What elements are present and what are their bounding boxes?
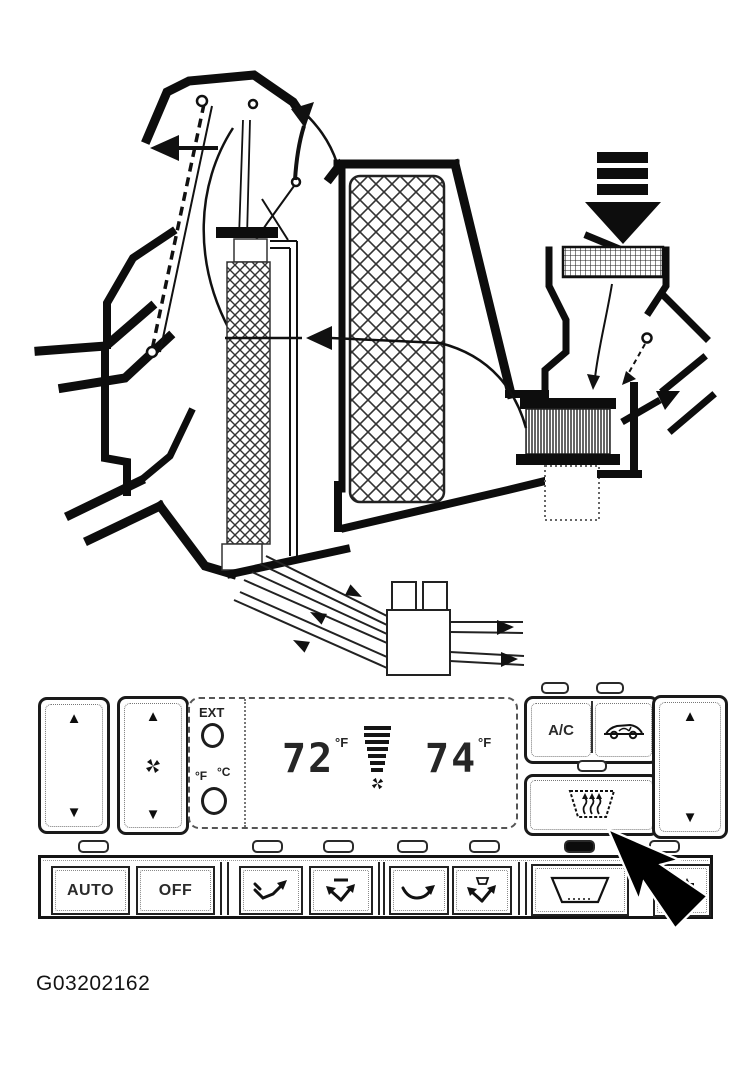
windshield-defrost-icon	[563, 786, 621, 824]
indicator-led	[78, 840, 109, 853]
fan-speed-gauge	[363, 726, 391, 790]
fan-speed-bar	[367, 747, 388, 751]
divider	[227, 862, 229, 915]
driver-temp-readout: 72	[282, 739, 334, 779]
panel-vent-icon	[249, 874, 293, 908]
fan-speed-bar	[371, 768, 383, 772]
heater-core	[216, 227, 278, 570]
passenger-temp-unit: °F	[478, 735, 491, 750]
fahrenheit-label: °F	[195, 769, 207, 783]
divider	[220, 862, 222, 915]
hvac-housing	[231, 164, 712, 574]
vent-mode-bilevel-button[interactable]	[309, 866, 373, 915]
ac-button-label: A/C	[548, 722, 574, 739]
driver-temp-bezel: ▲ ▼	[38, 697, 110, 834]
fan-speed-bezel: ▲ ▼	[117, 696, 189, 835]
indicator-led	[397, 840, 428, 853]
front-defrost-mode-button[interactable]	[531, 864, 629, 916]
indicator-led	[469, 840, 500, 853]
climate-display: EXT °F °C 72 °F 74 °F	[188, 697, 518, 829]
driver-temp-unit: °F	[335, 735, 348, 750]
hvac-airflow-diagram	[0, 0, 755, 690]
down-arrow-icon[interactable]: ▼	[67, 806, 82, 819]
divider	[383, 862, 385, 915]
coolant-flow-arrows	[450, 620, 524, 667]
display-sensor-column: EXT °F °C	[190, 699, 246, 827]
fan-speed-bar	[364, 726, 391, 730]
ext-indicator-window	[201, 723, 224, 748]
fan-speed-bar	[365, 740, 389, 744]
off-button[interactable]: OFF	[136, 866, 215, 915]
vent-mode-floor-defrost-button[interactable]	[452, 866, 512, 915]
up-arrow-icon[interactable]: ▲	[683, 710, 698, 723]
blower-motor	[516, 398, 620, 520]
passenger-temp-bezel: ▲ ▼	[652, 695, 728, 839]
auto-button[interactable]: AUTO	[51, 866, 130, 915]
air-intake-arrow	[585, 152, 661, 244]
ac-recirc-bezel: A/C	[524, 696, 659, 764]
ac-indicator-led	[541, 682, 569, 694]
passenger-temp-readout: 74	[425, 739, 477, 779]
hose-connector-box	[387, 582, 450, 675]
floor-defrost-vent-icon	[460, 874, 504, 908]
windshield-icon	[542, 870, 618, 910]
down-arrow-icon[interactable]: ▼	[146, 808, 161, 821]
figure-caption: G03202162	[36, 972, 150, 996]
intake-airflow-arrow	[587, 284, 612, 390]
celsius-label: °C	[217, 765, 230, 779]
rear-defrost-icon	[665, 874, 699, 908]
driver-temp-rocker[interactable]: ▲ ▼	[45, 704, 103, 827]
up-arrow-icon[interactable]: ▲	[146, 710, 161, 723]
service-manual-figure: ▲ ▼ ▲ ▼ EXT °F °C 72 °F 74 °F	[0, 0, 755, 1071]
fan-icon	[145, 758, 161, 774]
down-arrow-icon[interactable]: ▼	[683, 811, 698, 824]
divider	[525, 862, 527, 915]
fan-icon	[371, 777, 384, 790]
front-defrost-button[interactable]	[530, 780, 653, 830]
vent-mode-panel-button[interactable]	[239, 866, 303, 915]
unit-indicator-window	[201, 787, 227, 815]
divider	[518, 862, 520, 915]
ac-group-led	[577, 760, 607, 772]
divider	[378, 862, 380, 915]
heater-hoses	[234, 556, 387, 668]
face-vent-arrow	[291, 102, 314, 180]
divider	[591, 701, 593, 753]
front-defrost-active-led	[564, 840, 595, 853]
fan-speed-bar	[364, 733, 390, 737]
floor-vent-icon	[397, 874, 441, 908]
indicator-led	[323, 840, 354, 853]
up-arrow-icon[interactable]: ▲	[67, 712, 82, 725]
recirc-indicator-led	[596, 682, 624, 694]
heater-duct-walls	[270, 241, 297, 556]
defrost-airflow-arrow	[150, 135, 218, 161]
bilevel-vent-icon	[319, 874, 363, 908]
defroster-outlet	[147, 75, 303, 139]
mode-button-row: AUTO OFF	[38, 855, 713, 919]
ac-button[interactable]: A/C	[531, 703, 591, 757]
indicator-led	[649, 840, 680, 853]
fan-speed-rocker[interactable]: ▲ ▼	[124, 703, 182, 828]
fan-speed-bar	[370, 761, 385, 765]
auto-button-label: AUTO	[67, 882, 114, 900]
vent-mode-floor-button[interactable]	[389, 866, 449, 915]
defrost-duct-walls	[239, 120, 250, 237]
indicator-led	[252, 840, 283, 853]
fan-speed-bar	[368, 754, 386, 758]
off-button-label: OFF	[159, 882, 193, 900]
intake-grille	[563, 247, 663, 277]
rear-defrost-button[interactable]	[653, 864, 711, 917]
recirculation-door	[622, 334, 652, 386]
recirculation-button[interactable]	[595, 703, 652, 757]
recirculation-car-icon	[602, 719, 646, 741]
front-defrost-bezel	[524, 774, 659, 836]
passenger-temp-rocker[interactable]: ▲ ▼	[659, 702, 721, 832]
ext-label: EXT	[199, 705, 224, 720]
